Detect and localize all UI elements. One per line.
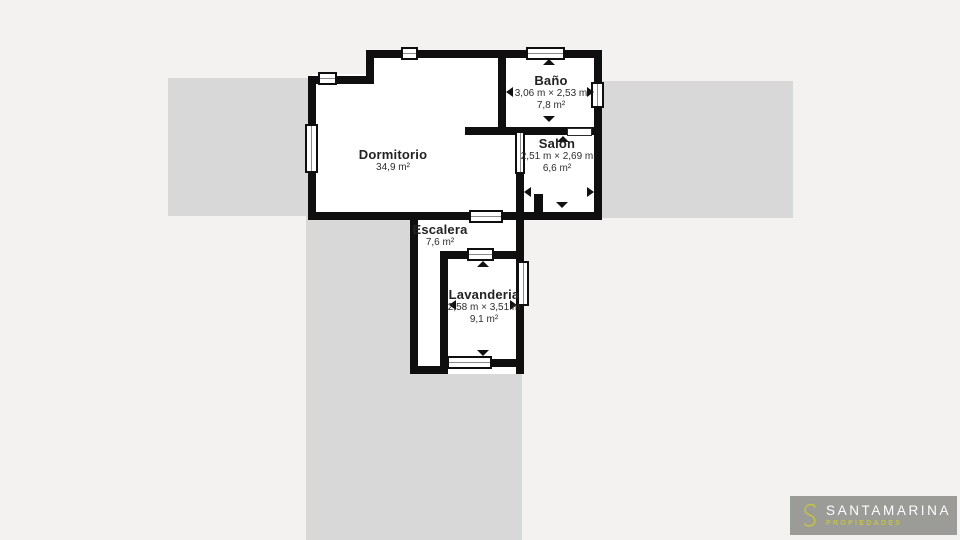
window-icon-step: [318, 72, 337, 85]
backdrop-block-right: [600, 81, 793, 218]
brand-name: SANTAMARINA: [826, 504, 951, 518]
wall-salon-stub: [534, 194, 543, 212]
brand-tagline: PROPIEDADES: [826, 519, 951, 528]
door-opening-salon-top: [567, 128, 592, 136]
wall-right: [594, 50, 602, 220]
room-area: 7,6 m²: [412, 237, 467, 249]
dimension-arrow-down-icon: [543, 116, 555, 122]
room-label-dormitorio: Dormitorio 34,9 m²: [359, 147, 427, 174]
room-dimensions: 2,58 m × 3,51 m: [448, 302, 521, 314]
room-area: 34,9 m²: [359, 162, 427, 174]
room-dimensions: 3,06 m × 2,53 m: [515, 88, 588, 100]
dimension-arrow-left-icon: [506, 87, 513, 97]
dimension-arrow-left-icon: [524, 187, 531, 197]
window-icon-lav-top: [467, 248, 494, 261]
dimension-arrow-down-icon: [556, 202, 568, 208]
backdrop-block-left: [168, 78, 310, 216]
room-label-lavanderia: Lavanderia 2,58 m × 3,51 m 9,1 m²: [448, 287, 521, 326]
window-icon-lav-bottom: [447, 356, 492, 369]
dimension-arrow-down-icon: [477, 350, 489, 356]
room-name: Lavanderia: [448, 287, 521, 302]
dimension-arrow-up-icon: [543, 59, 555, 65]
wall-bano-left: [498, 50, 506, 135]
room-label-salon: Salón 2,51 m × 2,69 m 6,6 m²: [521, 136, 594, 175]
room-label-escalera: Escalera 7,6 m²: [412, 222, 467, 249]
dimension-arrow-up-icon: [477, 261, 489, 267]
room-name: Escalera: [412, 222, 467, 237]
floorplan-canvas: Dormitorio 34,9 m² Baño 3,06 m × 2,53 m …: [0, 0, 960, 540]
room-area: 7,8 m²: [515, 100, 588, 112]
room-name: Baño: [515, 73, 588, 88]
window-icon-dorm-bottom: [469, 210, 503, 223]
room-dimensions: 2,51 m × 2,69 m: [521, 151, 594, 163]
wall-bottom: [308, 212, 602, 220]
room-area: 6,6 m²: [521, 163, 594, 175]
room-label-bano: Baño 3,06 m × 2,53 m 7,8 m²: [515, 73, 588, 112]
room-name: Dormitorio: [359, 147, 427, 162]
santamarina-monogram-icon: [800, 502, 820, 529]
window-icon-left: [305, 124, 318, 173]
dimension-arrow-right-icon: [587, 187, 594, 197]
brand-logo: SANTAMARINA PROPIEDADES: [790, 496, 957, 535]
room-area: 9,1 m²: [448, 314, 521, 326]
dimension-arrow-right-icon: [587, 87, 594, 97]
window-icon-dorm-top: [401, 47, 418, 60]
room-name: Salón: [521, 136, 594, 151]
